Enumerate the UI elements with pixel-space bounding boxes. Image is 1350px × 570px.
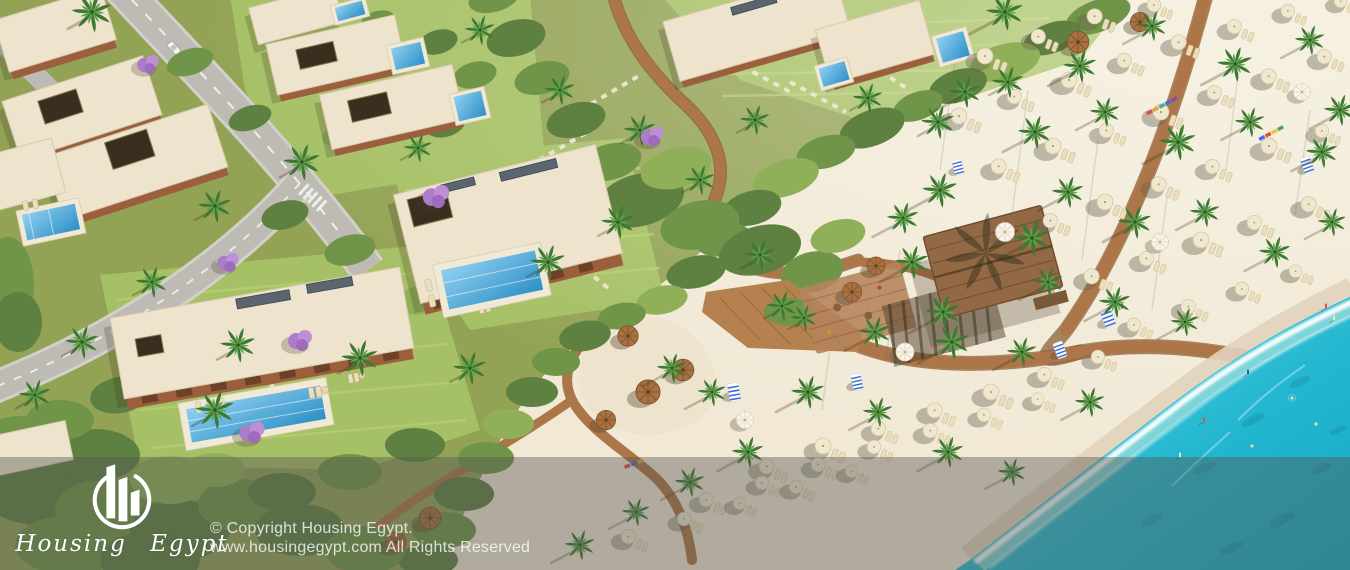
logo-bars-icon: [106, 464, 139, 521]
resort-aerial-render: Housing Egypt © Copyright Housing Egypt.…: [0, 0, 1350, 570]
housing-egypt-logo-icon: [76, 459, 168, 533]
copyright-notice: © Copyright Housing Egypt. www.housingeg…: [210, 520, 530, 558]
copyright-line-2: www.housingegypt.com All Rights Reserved: [210, 539, 530, 558]
housing-egypt-logo: Housing Egypt: [8, 459, 236, 557]
copyright-line-1: © Copyright Housing Egypt.: [210, 520, 530, 539]
watermark-bar: Housing Egypt © Copyright Housing Egypt.…: [0, 457, 1350, 570]
logo-wordmark: Housing Egypt: [15, 531, 228, 557]
